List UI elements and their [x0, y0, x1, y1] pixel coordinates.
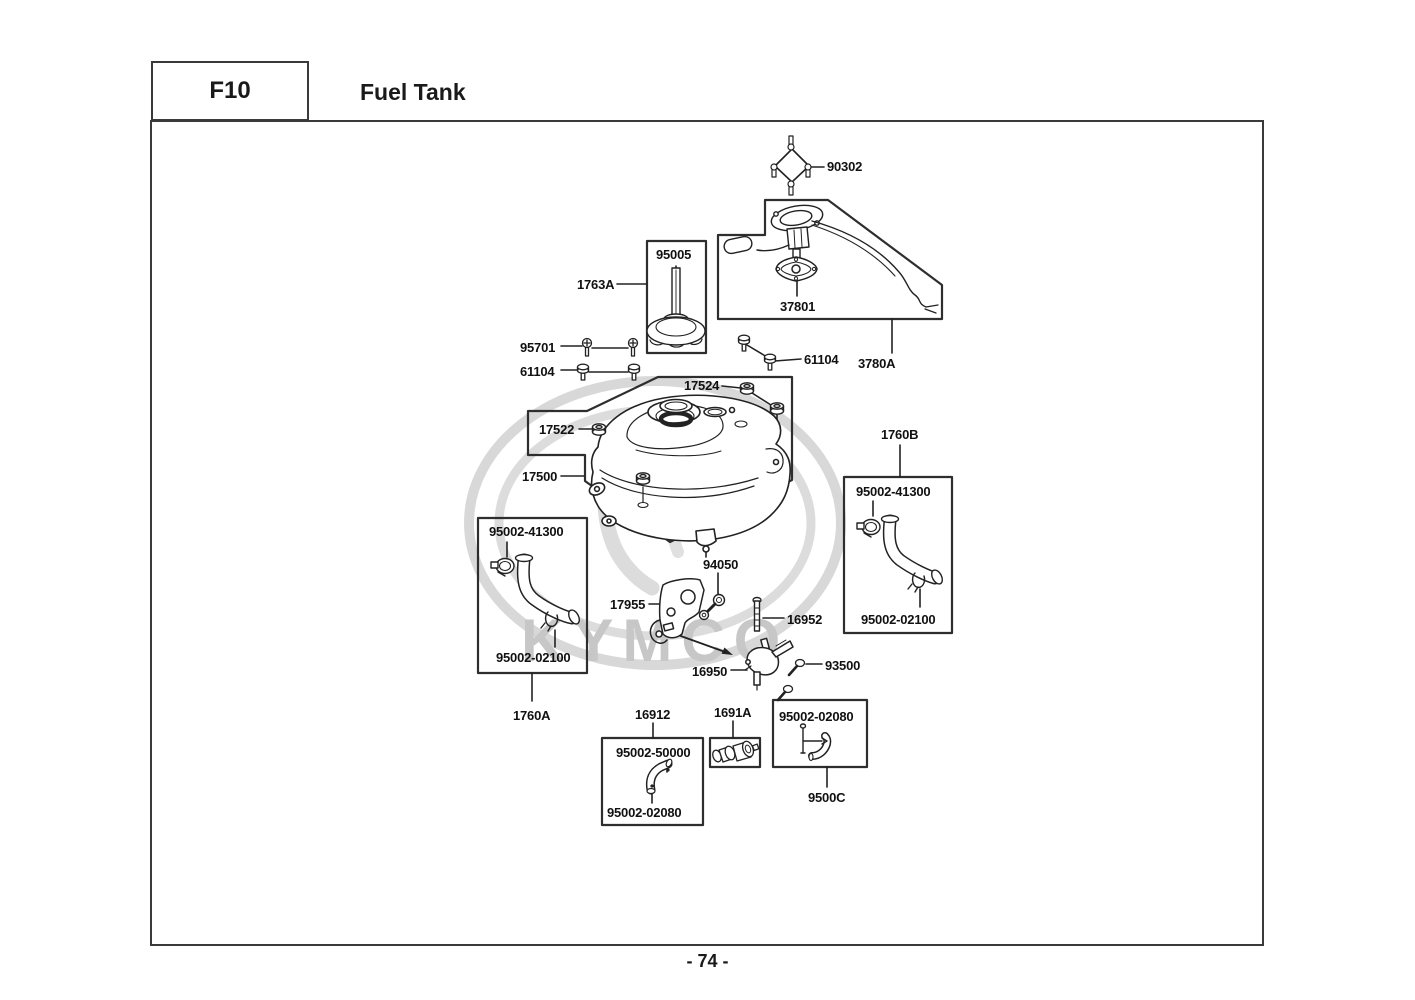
part-label-17955: 17955	[610, 597, 645, 612]
part-label-95002-41300-r: 95002-41300	[856, 484, 930, 499]
part-label-95005: 95005	[656, 247, 691, 262]
part-label-94050: 94050	[703, 557, 738, 572]
page-title: Fuel Tank	[360, 79, 466, 106]
part-label-95002-02080-r: 95002-02080	[779, 709, 853, 724]
part-label-95002-02100-l: 95002-02100	[496, 650, 570, 665]
part-label-17524: 17524	[684, 378, 719, 393]
part-label-95002-41300-l: 95002-41300	[489, 524, 563, 539]
part-label-3780A: 3780A	[858, 356, 895, 371]
part-label-16912: 16912	[635, 707, 670, 722]
part-label-90302: 90302	[827, 159, 862, 174]
part-label-93500: 93500	[825, 658, 860, 673]
part-label-61104-right: 61104	[804, 352, 838, 367]
part-label-9500C: 9500C	[808, 790, 845, 805]
part-label-95002-50000: 95002-50000	[616, 745, 690, 760]
catalog-page: KYMCO	[0, 0, 1415, 1000]
part-label-95002-02100-r: 95002-02100	[861, 612, 935, 627]
part-label-16950: 16950	[692, 664, 727, 679]
part-label-16952: 16952	[787, 612, 822, 627]
part-label-95701: 95701	[520, 340, 555, 355]
part-label-37801: 37801	[780, 299, 815, 314]
part-label-1763A: 1763A	[577, 277, 614, 292]
part-label-1760B: 1760B	[881, 427, 918, 442]
part-label-17522: 17522	[539, 422, 574, 437]
part-label-1760A: 1760A	[513, 708, 550, 723]
diagram-border	[150, 120, 1264, 946]
section-code-box: F10	[151, 61, 309, 121]
page-number: - 74 -	[0, 951, 1415, 972]
part-label-61104-left: 61104	[520, 364, 554, 379]
part-label-1691A: 1691A	[714, 705, 751, 720]
section-code: F10	[209, 77, 250, 105]
part-label-17500: 17500	[522, 469, 557, 484]
part-label-95002-02080-l: 95002-02080	[607, 805, 681, 820]
